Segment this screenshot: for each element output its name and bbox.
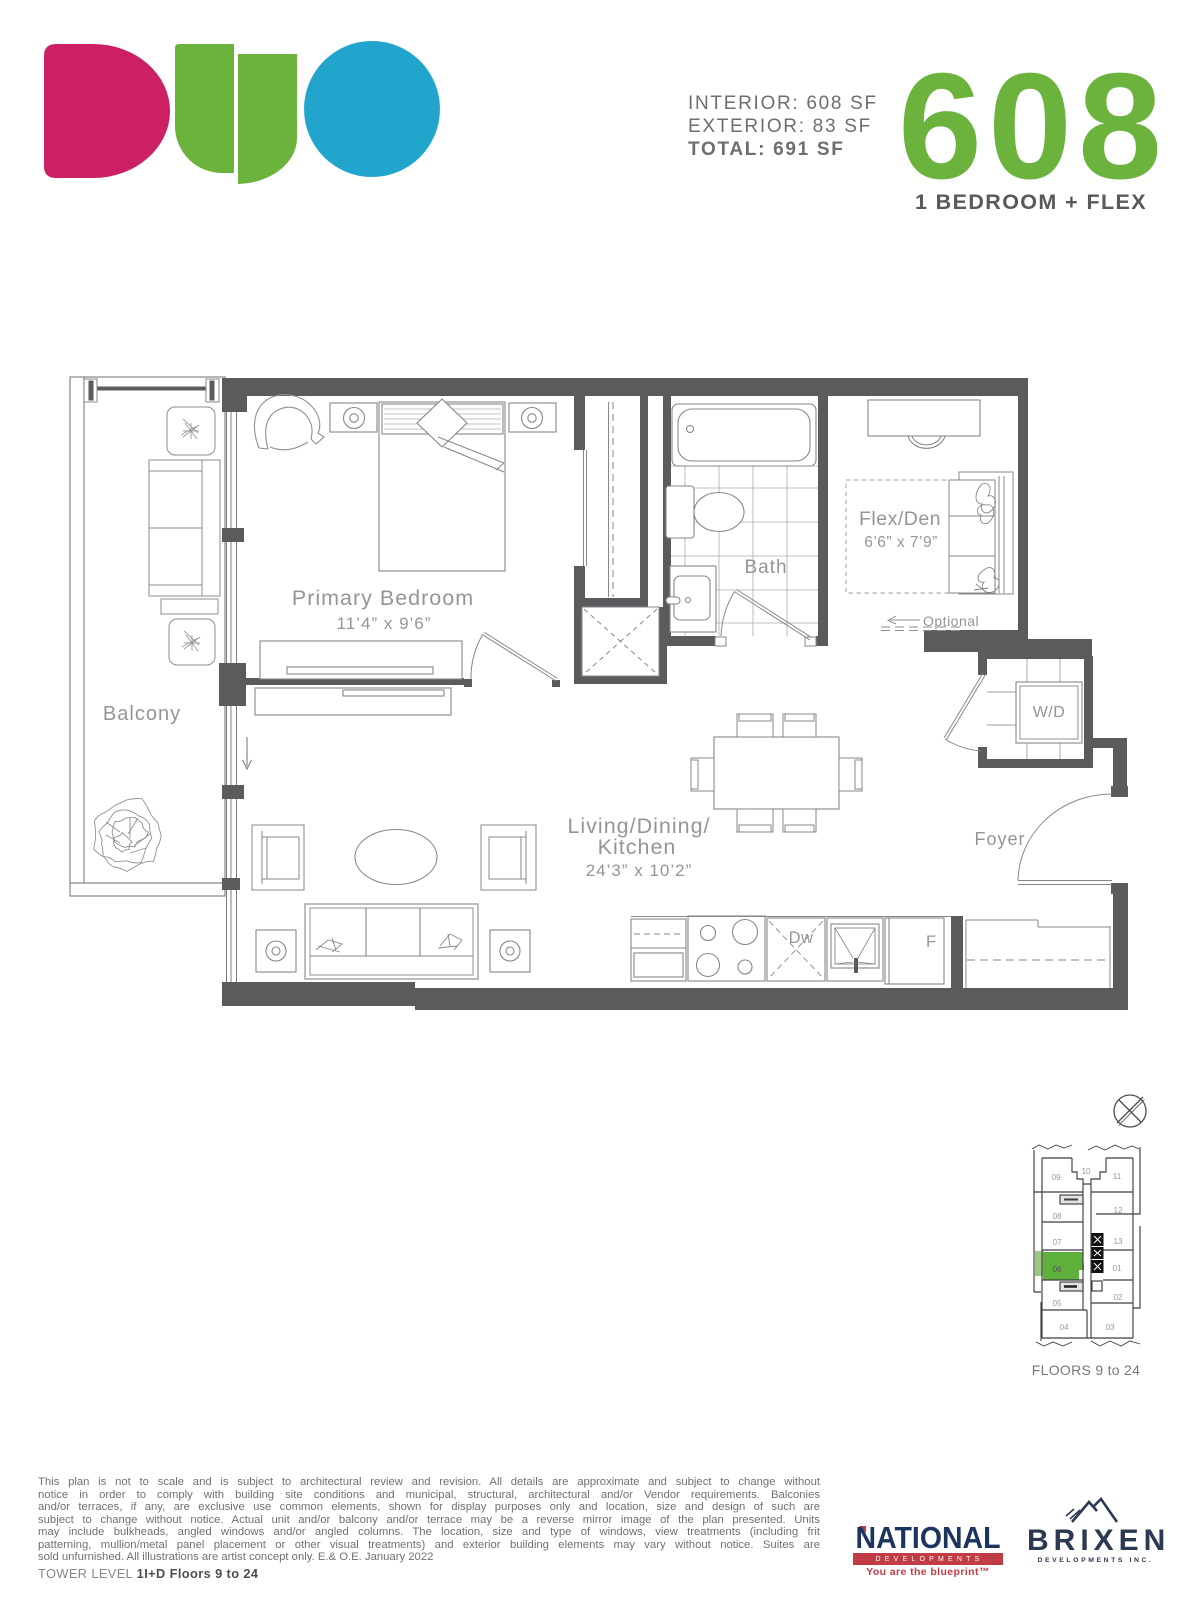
svg-text:6’6” x 7’9”: 6’6” x 7’9” — [864, 534, 938, 551]
svg-text:03: 03 — [1105, 1323, 1115, 1332]
svg-text:Dw: Dw — [789, 929, 814, 947]
svg-text:Kitchen: Kitchen — [598, 835, 677, 859]
svg-text:24’3” x 10’2”: 24’3” x 10’2” — [586, 861, 693, 880]
svg-text:06: 06 — [1052, 1265, 1062, 1274]
svg-text:10: 10 — [1081, 1167, 1091, 1176]
svg-text:Primary Bedroom: Primary Bedroom — [292, 586, 474, 610]
svg-text:NATIONAL: NATIONAL — [856, 1524, 1001, 1553]
svg-text:Bath: Bath — [744, 557, 787, 578]
svg-text:W/D: W/D — [1033, 704, 1066, 721]
svg-text:FLOORS 9 to 24: FLOORS 9 to 24 — [1032, 1362, 1140, 1378]
svg-text:F: F — [926, 933, 936, 951]
svg-text:08: 08 — [1052, 1212, 1062, 1221]
svg-text:Balcony: Balcony — [103, 703, 181, 725]
svg-text:11: 11 — [1113, 1172, 1122, 1181]
svg-text:02: 02 — [1113, 1293, 1123, 1302]
svg-text:07: 07 — [1052, 1238, 1062, 1247]
svg-text:01: 01 — [1112, 1264, 1122, 1273]
svg-text:13: 13 — [1113, 1237, 1123, 1246]
svg-text:05: 05 — [1052, 1299, 1062, 1308]
svg-text:12: 12 — [1113, 1206, 1123, 1215]
svg-text:Flex/Den: Flex/Den — [859, 508, 941, 530]
svg-text:09: 09 — [1051, 1173, 1061, 1182]
svg-text:04: 04 — [1059, 1323, 1069, 1332]
svg-text:Optional: Optional — [923, 613, 979, 629]
svg-text:Foyer: Foyer — [974, 829, 1025, 849]
svg-text:11’4” x 9’6”: 11’4” x 9’6” — [337, 614, 432, 633]
